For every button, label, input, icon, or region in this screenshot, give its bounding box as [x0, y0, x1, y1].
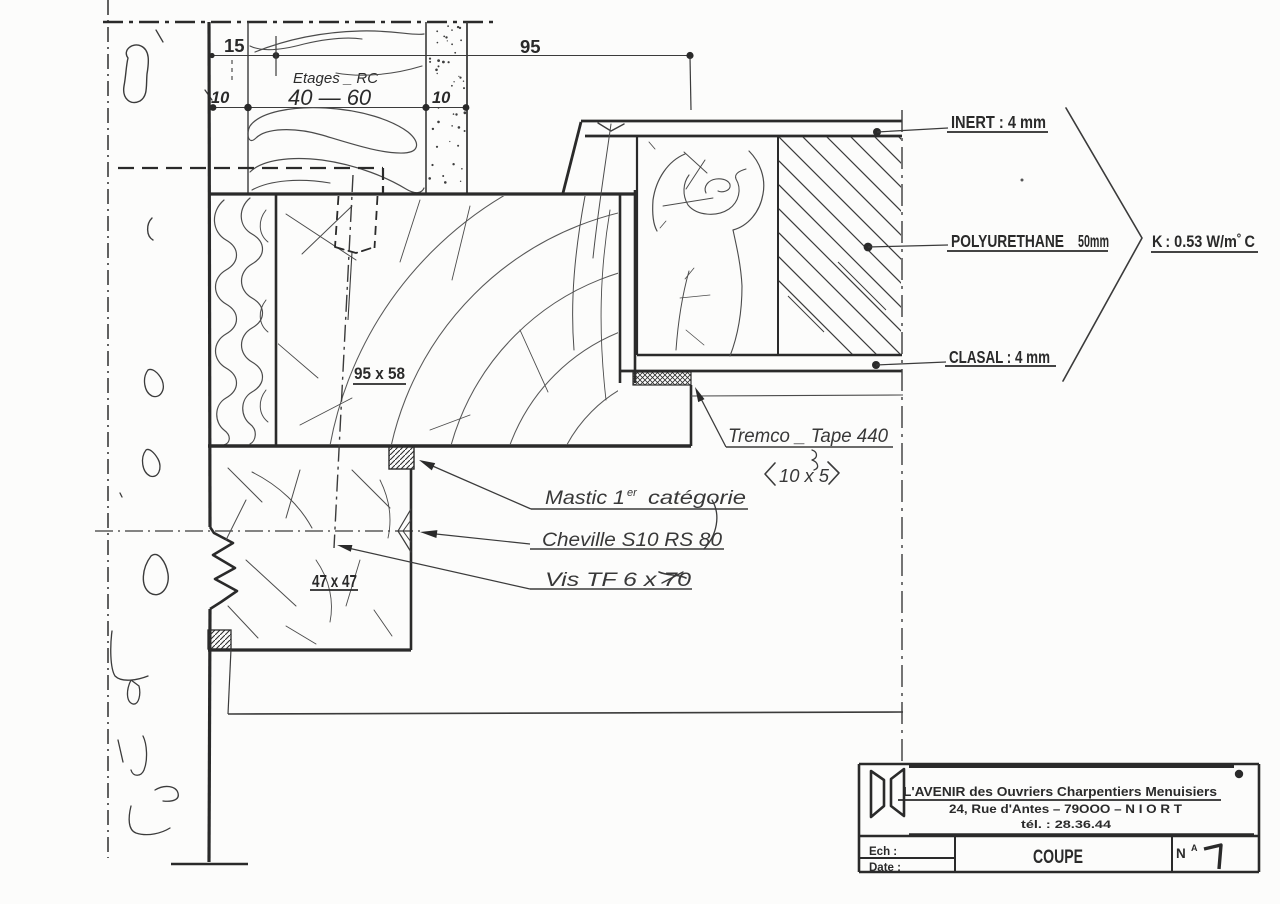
svg-text:Date :: Date : — [869, 862, 901, 874]
svg-text:COUPE: COUPE — [1033, 847, 1083, 868]
svg-text:24, Rue d'Antes – 79OOO –: 24, Rue d'Antes – 79OOO – N I O R T — [949, 804, 1182, 816]
svg-text:10: 10 — [211, 89, 230, 107]
svg-text:50mm: 50mm — [1078, 231, 1109, 251]
svg-text:15: 15 — [224, 35, 245, 56]
svg-text:K : 0.53 W/m˚ C: K : 0.53 W/m˚ C — [1152, 232, 1255, 251]
svg-text:POLYURETHANE: POLYURETHANE — [951, 231, 1064, 251]
svg-text:Tremco _ Tape 440: Tremco _ Tape 440 — [728, 426, 888, 447]
svg-text:CLASAL : 4 mm: CLASAL : 4 mm — [949, 347, 1050, 367]
svg-text:Cheville S10 RS 80: Cheville S10 RS 80 — [542, 530, 722, 551]
svg-text:47 x 47: 47 x 47 — [312, 571, 357, 591]
svg-text:er: er — [627, 487, 638, 499]
svg-text:10 x 5: 10 x 5 — [779, 466, 830, 486]
svg-text:L'AVENIR des Ouvriers Charp: L'AVENIR des Ouvriers Charpentiers Menui… — [903, 784, 1217, 799]
svg-text:Vis TF 6 x 70: Vis TF 6 x 70 — [545, 570, 692, 591]
svg-text:40 — 60: 40 — 60 — [288, 85, 372, 110]
svg-text:10: 10 — [432, 89, 451, 107]
svg-text:Mastic 1: Mastic 1 — [545, 487, 625, 509]
svg-text:catégorie: catégorie — [648, 487, 746, 509]
svg-text:95: 95 — [520, 36, 541, 57]
svg-text:N: N — [1176, 846, 1186, 861]
svg-text:tél. : 28.36.44: tél. : 28.36.44 — [1021, 819, 1112, 831]
svg-text:INERT : 4 mm: INERT : 4 mm — [951, 112, 1046, 132]
svg-text:95 x 58: 95 x 58 — [354, 365, 405, 383]
svg-text:A: A — [1191, 843, 1198, 853]
svg-text:Ech :: Ech : — [869, 846, 897, 858]
